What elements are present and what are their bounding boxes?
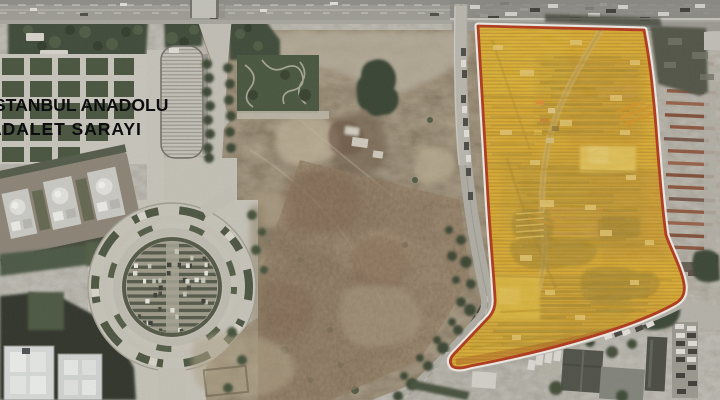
svg-text:ADALET SARAYI: ADALET SARAYI (0, 119, 142, 139)
svg-text:ISTANBUL ANADOLU: ISTANBUL ANADOLU (0, 95, 169, 115)
